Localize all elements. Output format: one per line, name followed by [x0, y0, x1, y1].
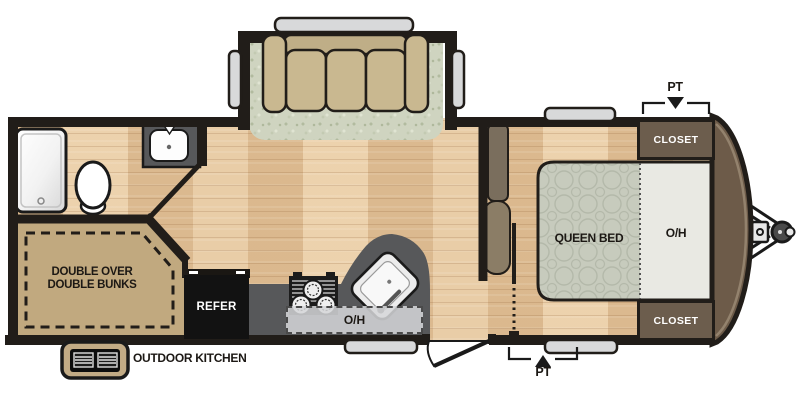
sofa [263, 35, 428, 112]
refrigerator-handle [189, 271, 198, 274]
hitch-plate [752, 222, 768, 242]
kitchen-overhead-cabinet: O/H [286, 306, 423, 334]
slide-left-window [229, 51, 241, 108]
entry-door [428, 341, 489, 366]
pt-bottom-label: PT [520, 366, 566, 380]
bedroom-wardrobe [484, 124, 510, 274]
closet-bottom: CLOSET [637, 300, 715, 341]
shower-drain [38, 198, 44, 204]
sofa-cushion [286, 50, 326, 111]
refrigerator: REFER [184, 275, 249, 339]
kitchen-overhead-label: O/H [344, 313, 365, 327]
queen-bed-label: QUEEN BED [535, 232, 643, 245]
bathroom [16, 122, 200, 214]
refrigerator-label: REFER [197, 301, 237, 313]
bathroom-sink-drain [167, 145, 171, 149]
outdoor-kitchen-icon [62, 342, 128, 378]
kitchen-bottom-window [345, 340, 417, 353]
toilet [76, 162, 110, 214]
closet-top-label: CLOSET [654, 134, 699, 146]
shower [16, 129, 66, 212]
travel-trailer-floorplan: CLOSET CLOSET REFER O/H DOUBLE OVER DOUB… [0, 0, 800, 400]
sofa-cushion [326, 50, 366, 111]
bathroom-sink [143, 122, 200, 167]
hitch-coupler-latch [786, 228, 795, 237]
sofa-cushion [366, 50, 406, 111]
closet-top: CLOSET [637, 119, 715, 160]
bedroom-overhead-label: O/H [653, 227, 699, 240]
pt-top-label: PT [652, 81, 698, 95]
hitch-coupler-pin [778, 230, 782, 234]
closet-bottom-label: CLOSET [654, 315, 699, 327]
bedroom-bottom-window [545, 340, 617, 353]
sofa-armrest [405, 35, 428, 112]
sofa-armrest [263, 35, 286, 112]
curtain-end-block [509, 331, 519, 340]
bunks-label: DOUBLE OVER DOUBLE BUNKS [22, 266, 162, 291]
bathroom-door-leaf [150, 163, 201, 217]
bunks-label-line2: DOUBLE BUNKS [22, 279, 162, 292]
bedroom-top-window [545, 108, 615, 121]
pt-arrow-down-icon [667, 97, 684, 109]
refrigerator-handle [236, 271, 245, 274]
outdoor-kitchen-label: OUTDOOR KITCHEN [133, 352, 293, 365]
bunks-label-line1: DOUBLE OVER [22, 266, 162, 279]
slide-top-window [275, 18, 413, 32]
slide-right-window [452, 51, 464, 108]
